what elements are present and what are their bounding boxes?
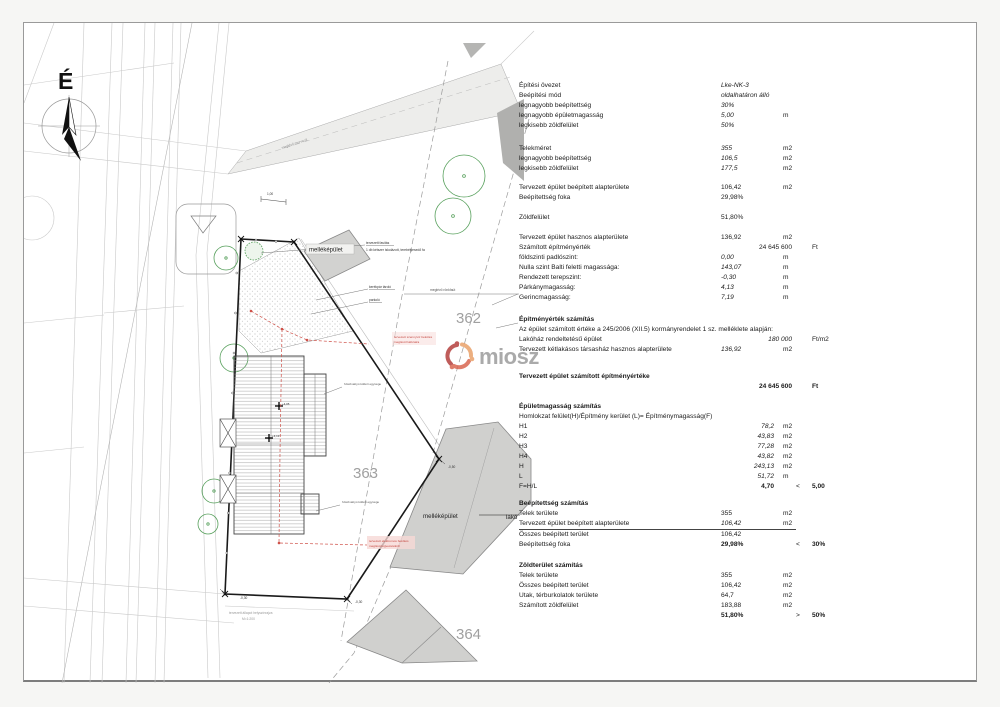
table-cell-unit: m xyxy=(783,263,796,273)
table-cell-comp xyxy=(796,591,812,601)
table-row: H443,82m2 xyxy=(519,452,864,462)
table-cell-comp: < xyxy=(796,540,812,550)
table-row: Zöldterület számítás xyxy=(519,561,864,571)
table-cell-unit xyxy=(783,193,796,203)
table-cell-comp: < xyxy=(796,482,812,492)
electric-note-line1: tervezett elektromos bekötés xyxy=(369,539,409,543)
level-bottom-right: -0,30 xyxy=(355,600,362,604)
table-cell-unit: m xyxy=(783,111,796,121)
outbuilding-top-label: melléképület xyxy=(309,248,343,254)
table-row: legnagyobb épületmagasság5,00m xyxy=(519,111,864,121)
table-cell-value: 4,13 xyxy=(721,283,783,293)
table-cell-label: Az épület számított értéke a 245/2006 (X… xyxy=(519,325,852,335)
table-cell-unit: m2 xyxy=(783,452,796,462)
table-row: 51,80%>50% xyxy=(519,611,864,621)
table-row: Beépítettség számítás xyxy=(519,499,864,509)
table-cell-value: oldalhatáron álló xyxy=(721,91,783,101)
table-row: H178,2m2 xyxy=(519,422,864,432)
table-cell-comp xyxy=(796,530,812,540)
table-cell-label: H3 xyxy=(519,442,721,452)
table-section: Tervezett épület számított építményérték… xyxy=(519,372,864,392)
table-cell-unit xyxy=(783,91,796,101)
table-cell-label: Beépítettség számítás xyxy=(519,499,852,509)
table-cell-comp xyxy=(796,193,812,203)
table-cell-comp xyxy=(796,81,812,91)
table-cell-value: 177,5 xyxy=(721,164,783,174)
table-cell-limit xyxy=(812,462,852,472)
table-cell-limit xyxy=(812,472,852,482)
table-cell-value: 30% xyxy=(721,101,783,111)
table-cell-limit xyxy=(812,273,852,283)
table-cell-comp xyxy=(796,121,812,131)
parcel-363: 363 xyxy=(353,465,378,482)
table-cell-limit xyxy=(812,81,852,91)
table-row: Számított zöldfelület183,88m2 xyxy=(519,601,864,611)
table-cell-value: 5,00 xyxy=(721,111,783,121)
table-row: Számított építményérték24 645 600Ft xyxy=(519,243,864,253)
tree-note-line1: tervezett fasítás xyxy=(366,241,390,245)
table-cell-limit xyxy=(812,452,852,462)
table-cell-label: Lakóház rendeltetésű épület xyxy=(519,335,721,345)
table-row: Beépítési módoldalhatáron álló xyxy=(519,91,864,101)
table-cell-limit xyxy=(812,432,852,442)
planted-shrub xyxy=(245,242,263,260)
table-cell-limit xyxy=(812,253,852,263)
table-cell-limit xyxy=(812,154,852,164)
table-cell-unit xyxy=(783,530,796,540)
north-arrow: É xyxy=(38,67,100,161)
table-cell-limit xyxy=(812,101,852,111)
electric-note-line2: meglévő légvezetékről xyxy=(369,544,400,548)
table-cell-value: 77,28 xyxy=(721,442,783,452)
table-cell-limit xyxy=(812,183,852,193)
table-row: legkisebb zöldfelület50% xyxy=(519,121,864,131)
table-cell-value: 136,92 xyxy=(721,233,783,243)
table-cell-label: Nulla szint Balti feletti magassága: xyxy=(519,263,721,273)
table-cell-label: Tervezett épület beépített alapterülete xyxy=(519,519,721,530)
table-cell-value: 355 xyxy=(721,144,783,154)
table-row: Telek területe355m2 xyxy=(519,571,864,581)
table-cell-comp xyxy=(796,91,812,101)
table-row: Telekméret355m2 xyxy=(519,144,864,154)
table-cell-unit: m2 xyxy=(783,164,796,174)
table-section: Beépítettség számításTelek területe355m2… xyxy=(519,499,864,550)
table-cell-unit xyxy=(783,81,796,91)
table-cell-label: legnagyobb épületmagasság xyxy=(519,111,721,121)
table-cell-label: Építményérték számítás xyxy=(519,315,852,325)
table-cell-comp xyxy=(796,601,812,611)
table-cell-label: H2 xyxy=(519,432,721,442)
table-cell-value: 29,98% xyxy=(721,193,783,203)
table-cell-limit xyxy=(812,193,852,203)
table-cell-comp xyxy=(796,452,812,462)
table-cell-comp xyxy=(796,509,812,519)
table-cell-value: 24 645 600 xyxy=(721,243,812,253)
table-cell-value: 106,42 xyxy=(721,530,783,540)
table-row: Gerincmagasság:7,19m xyxy=(519,293,864,303)
table-row: H243,13m2 xyxy=(519,462,864,472)
table-row: Tervezett kétlakásos társasház hasznos a… xyxy=(519,345,864,355)
table-section: Tervezett épület beépített alapterülete1… xyxy=(519,183,864,203)
sheet-note-line1: tervezett állapot helyszínrajza xyxy=(229,611,273,615)
table-cell-comp xyxy=(796,111,812,121)
table-row: legnagyobb beépítettség106,5m2 xyxy=(519,154,864,164)
watermark-logo-icon xyxy=(447,341,474,369)
table-row: Építési övezetLke-NK-3 xyxy=(519,81,864,91)
table-cell-comp xyxy=(796,571,812,581)
table-cell-value: 180 000 xyxy=(721,335,812,345)
table-row: H377,28m2 xyxy=(519,442,864,452)
table-cell-limit xyxy=(812,519,852,530)
table-cell-limit xyxy=(812,581,852,591)
table-cell-label: Beépítettség foka xyxy=(519,193,721,203)
table-section: Építményérték számításAz épület számítot… xyxy=(519,315,864,355)
table-cell-comp xyxy=(796,273,812,283)
table-cell-unit: Ft xyxy=(812,243,852,253)
table-cell-label: Számított építményérték xyxy=(519,243,721,253)
table-cell-label: Zöldterület számítás xyxy=(519,561,852,571)
table-cell-comp: > xyxy=(796,611,812,621)
sewer-note-line2: meglévő hálózatra xyxy=(394,340,420,344)
table-cell-unit: m2 xyxy=(783,345,796,355)
table-cell-value: 78,2 xyxy=(721,422,783,432)
table-cell-comp xyxy=(796,345,812,355)
table-cell-comp xyxy=(796,154,812,164)
table-cell-label: H xyxy=(519,462,721,472)
lako-label: lakó xyxy=(506,514,518,521)
table-cell-limit xyxy=(812,442,852,452)
table-cell-unit: m2 xyxy=(783,601,796,611)
table-cell-comp xyxy=(796,422,812,432)
table-cell-label: legnagyobb beépítettség xyxy=(519,101,721,111)
table-row: Rendezett terepszint:-0,30m xyxy=(519,273,864,283)
table-row: Párkánymagasság:4,13m xyxy=(519,283,864,293)
table-cell-value: 355 xyxy=(721,571,783,581)
heatpump-label-2: hőszivattyú kültéri egysége xyxy=(342,500,379,504)
table-row: Tervezett épület beépített alapterülete1… xyxy=(519,519,864,530)
table-cell-value: 51,80% xyxy=(721,611,783,621)
table-cell-value: 0,00 xyxy=(721,253,783,263)
table-cell-unit: m2 xyxy=(783,422,796,432)
table-cell-comp xyxy=(796,144,812,154)
table-cell-label: Tervezett kétlakásos társasház hasznos a… xyxy=(519,345,721,355)
table-cell-value: 24 645 600 xyxy=(721,382,812,392)
table-cell-comp xyxy=(796,519,812,530)
table-cell-unit: m2 xyxy=(783,462,796,472)
table-cell-label: Rendezett terepszint: xyxy=(519,273,721,283)
table-cell-limit xyxy=(812,164,852,174)
table-cell-comp xyxy=(796,253,812,263)
table-cell-value: 7,19 xyxy=(721,293,783,303)
table-cell-label: legkisebb zöldfelület xyxy=(519,121,721,131)
table-row: földszinti padlószint:0,00m xyxy=(519,253,864,263)
heatpump-label-1: hőszivattyú kültéri egysége xyxy=(344,382,381,386)
table-cell-value: 64,7 xyxy=(721,591,783,601)
table-cell-value: 43,83 xyxy=(721,432,783,442)
table-cell-label: Épületmagasság számítás xyxy=(519,402,852,412)
parking-label: parkoló xyxy=(369,298,380,302)
table-row: Beépítettség foka29,98% xyxy=(519,193,864,203)
outbuilding-bottom-label: melléképület xyxy=(423,513,458,520)
table-section: Tervezett épület hasznos alapterülete136… xyxy=(519,233,864,303)
table-cell-label: Tervezett épület beépített alapterülete xyxy=(519,183,721,193)
table-cell-value: 50% xyxy=(721,121,783,131)
table-cell-label: földszinti padlószint: xyxy=(519,253,721,263)
table-section: Zöldfelület51,80% xyxy=(519,213,864,223)
table-cell-comp xyxy=(796,581,812,591)
table-row: H243,83m2 xyxy=(519,432,864,442)
table-cell-label: legnagyobb beépítettség xyxy=(519,154,721,164)
table-cell-unit: m2 xyxy=(783,581,796,591)
table-section: Telekméret355m2legnagyobb beépítettség10… xyxy=(519,144,864,174)
page: meglévő murva út É xyxy=(0,0,1000,707)
table-cell-limit: 5,00 xyxy=(812,482,852,492)
table-cell-limit xyxy=(812,530,852,540)
table-row: Utak, térburkolatok területe64,7m2 xyxy=(519,591,864,601)
table-cell-comp xyxy=(796,462,812,472)
table-cell-limit xyxy=(812,601,852,611)
table-cell-value: 29,98% xyxy=(721,540,783,550)
table-cell-comp xyxy=(796,283,812,293)
table-cell-unit: m2 xyxy=(783,183,796,193)
outbuilding-bottom-shape xyxy=(390,422,531,574)
table-cell-unit: m2 xyxy=(783,432,796,442)
table-cell-unit: m xyxy=(783,253,796,263)
spot-level-1: +4,05 xyxy=(282,402,290,406)
table-cell-label: Telekméret xyxy=(519,144,721,154)
table-cell-limit xyxy=(812,263,852,273)
table-cell-limit: 30% xyxy=(812,540,852,550)
table-cell-limit xyxy=(812,293,852,303)
level-bottom-left: -0,30 xyxy=(240,596,247,600)
table-cell-value: 4,70 xyxy=(721,482,783,492)
table-row: legkisebb zöldfelület177,5m2 xyxy=(519,164,864,174)
table-row: legnagyobb beépítettség30% xyxy=(519,101,864,111)
table-cell-label: Összes beépített terület xyxy=(519,530,721,540)
table-cell-value: 51,72 xyxy=(721,472,783,482)
table-cell-comp xyxy=(796,213,812,223)
table-cell-label: legkisebb zöldfelület xyxy=(519,164,721,174)
table-cell-comp xyxy=(796,183,812,193)
table-row: Lakóház rendeltetésű épület180 000Ft/m2 xyxy=(519,335,864,345)
table-cell-value: -0,30 xyxy=(721,273,783,283)
table-row: Zöldfelület51,80% xyxy=(519,213,864,223)
parcel-362: 362 xyxy=(456,310,481,327)
table-row: Homlokzat felület(H)/Építmény kerület (L… xyxy=(519,412,864,422)
table-cell-comp xyxy=(796,442,812,452)
table-cell-unit: Ft xyxy=(812,382,852,392)
table-cell-comp xyxy=(796,432,812,442)
table-cell-label: Telek területe xyxy=(519,571,721,581)
table-cell-label: Párkánymagasság: xyxy=(519,283,721,293)
table-cell-unit: m xyxy=(783,293,796,303)
table-cell-limit xyxy=(812,345,852,355)
tree-note-line2: 1 db kétszer iskolázott, terebélyesedő f… xyxy=(366,248,425,252)
table-cell-unit: m2 xyxy=(783,233,796,243)
table-section: Zöldterület számításTelek területe355m2Ö… xyxy=(519,561,864,621)
table-cell-unit: m2 xyxy=(783,571,796,581)
table-row: Tervezett épület beépített alapterülete1… xyxy=(519,183,864,193)
table-cell-value: 355 xyxy=(721,509,783,519)
table-cell-unit: m xyxy=(783,472,796,482)
parcel-divider-lines xyxy=(329,61,529,683)
planned-building: +4,05 +4,13 xyxy=(220,356,326,534)
table-cell-limit xyxy=(812,422,852,432)
level-top-right: -0,50 xyxy=(448,465,455,469)
table-cell-limit xyxy=(812,571,852,581)
table-row: Összes beépített terület106,42m2 xyxy=(519,581,864,591)
existing-road-label: meglévő rönkfaút xyxy=(430,288,455,292)
dim-label: 1,00 xyxy=(267,192,273,196)
table-cell-label: Utak, térburkolatok területe xyxy=(519,591,721,601)
table-cell-value: Lke-NK-3 xyxy=(721,81,783,91)
table-cell-value: 106,42 xyxy=(721,183,783,193)
sewer-note-line1: tervezett szennyvíz bekötés xyxy=(394,335,433,339)
table-cell-limit xyxy=(812,213,852,223)
sheet-note-line2: M=1:200 xyxy=(242,617,255,621)
table-cell-unit: Ft/m2 xyxy=(812,335,852,345)
drawing-sheet: meglévő murva út É xyxy=(23,22,977,682)
north-label: É xyxy=(58,67,73,94)
table-cell-limit xyxy=(812,111,852,121)
road-turnaround xyxy=(176,204,236,274)
table-cell-label: Zöldfelület xyxy=(519,213,721,223)
table-cell-label: H1 xyxy=(519,422,721,432)
table-cell-limit xyxy=(812,283,852,293)
table-cell-unit: m2 xyxy=(783,442,796,452)
table-cell-label: Tervezett épület hasznos alapterülete xyxy=(519,233,721,243)
table-row: Tervezett épület számított építményérték… xyxy=(519,372,864,392)
table-cell-unit: m2 xyxy=(783,519,796,530)
table-section: Építési övezetLke-NK-3Beépítési módoldal… xyxy=(519,81,864,131)
table-cell-unit xyxy=(783,213,796,223)
table-cell-label xyxy=(519,611,721,621)
table-row: Az épület számított értéke a 245/2006 (X… xyxy=(519,325,864,335)
table-cell-unit xyxy=(783,611,796,621)
table-cell-value: 51,80% xyxy=(721,213,783,223)
table-cell-unit xyxy=(783,540,796,550)
table-cell-limit xyxy=(812,591,852,601)
table-cell-label: F=H/L xyxy=(519,482,721,492)
table-cell-unit: m2 xyxy=(783,154,796,164)
table-cell-label: Gerincmagasság: xyxy=(519,293,721,303)
table-cell-limit xyxy=(812,91,852,101)
table-cell-comp xyxy=(796,101,812,111)
table-cell-value: 143,07 xyxy=(721,263,783,273)
table-section: Épületmagasság számításHomlokzat felület… xyxy=(519,402,864,492)
table-cell-limit xyxy=(812,144,852,154)
table-cell-unit: m2 xyxy=(783,144,796,154)
table-cell-comp xyxy=(796,263,812,273)
parcel-364: 364 xyxy=(456,626,481,643)
table-cell-value: 243,13 xyxy=(721,462,783,472)
table-cell-label: Számított zöldfelület xyxy=(519,601,721,611)
table-row: Összes beépített terület106,42 xyxy=(519,530,864,540)
table-cell-value: 106,5 xyxy=(721,154,783,164)
table-cell-label: Homlokzat felület(H)/Építmény kerület (L… xyxy=(519,412,852,422)
table-cell-label: L xyxy=(519,472,721,482)
table-cell-label: Összes beépített terület xyxy=(519,581,721,591)
table-row: Tervezett épület hasznos alapterülete136… xyxy=(519,233,864,243)
table-cell-label: H4 xyxy=(519,452,721,462)
table-cell-limit xyxy=(812,509,852,519)
table-cell-label: Telek területe xyxy=(519,509,721,519)
table-row: Telek területe355m2 xyxy=(519,509,864,519)
table-cell-unit xyxy=(783,482,796,492)
table-cell-value: 106,42 xyxy=(721,519,783,530)
table-cell-label: Beépítési mód xyxy=(519,91,721,101)
table-cell-unit: m xyxy=(783,283,796,293)
table-cell-value: 183,88 xyxy=(721,601,783,611)
table-cell-unit: m2 xyxy=(783,509,796,519)
table-cell-comp xyxy=(796,293,812,303)
table-cell-comp xyxy=(796,472,812,482)
table-cell-value: 43,82 xyxy=(721,452,783,462)
calc-table: Építési övezetLke-NK-3Beépítési módoldal… xyxy=(519,81,864,621)
table-cell-limit xyxy=(812,233,852,243)
table-cell-label: Építési övezet xyxy=(519,81,721,91)
table-cell-unit xyxy=(783,101,796,111)
table-cell-limit xyxy=(812,121,852,131)
table-cell-unit: m2 xyxy=(783,591,796,601)
table-cell-label: Beépítettség foka xyxy=(519,540,721,550)
table-cell-limit: 50% xyxy=(812,611,852,621)
bike-storage-label: kerékpár tároló xyxy=(369,285,391,289)
table-row: F=H/L4,70<5,00 xyxy=(519,482,864,492)
table-row: Épületmagasság számítás xyxy=(519,402,864,412)
table-cell-comp xyxy=(796,233,812,243)
table-cell-comp xyxy=(796,164,812,174)
table-cell-value: 106,42 xyxy=(721,581,783,591)
table-row: Nulla szint Balti feletti magassága:143,… xyxy=(519,263,864,273)
table-cell-label: Tervezett épület számított építményérték… xyxy=(519,372,852,382)
table-row: Építményérték számítás xyxy=(519,315,864,325)
table-cell-unit xyxy=(783,121,796,131)
table-row: Beépítettség foka29,98%<30% xyxy=(519,540,864,550)
table-cell-value: 136,92 xyxy=(721,345,783,355)
spot-level-2: +4,13 xyxy=(272,434,280,438)
gravel-road: meglévő murva út xyxy=(228,64,521,174)
table-row: L51,72m xyxy=(519,472,864,482)
table-cell-unit: m xyxy=(783,273,796,283)
